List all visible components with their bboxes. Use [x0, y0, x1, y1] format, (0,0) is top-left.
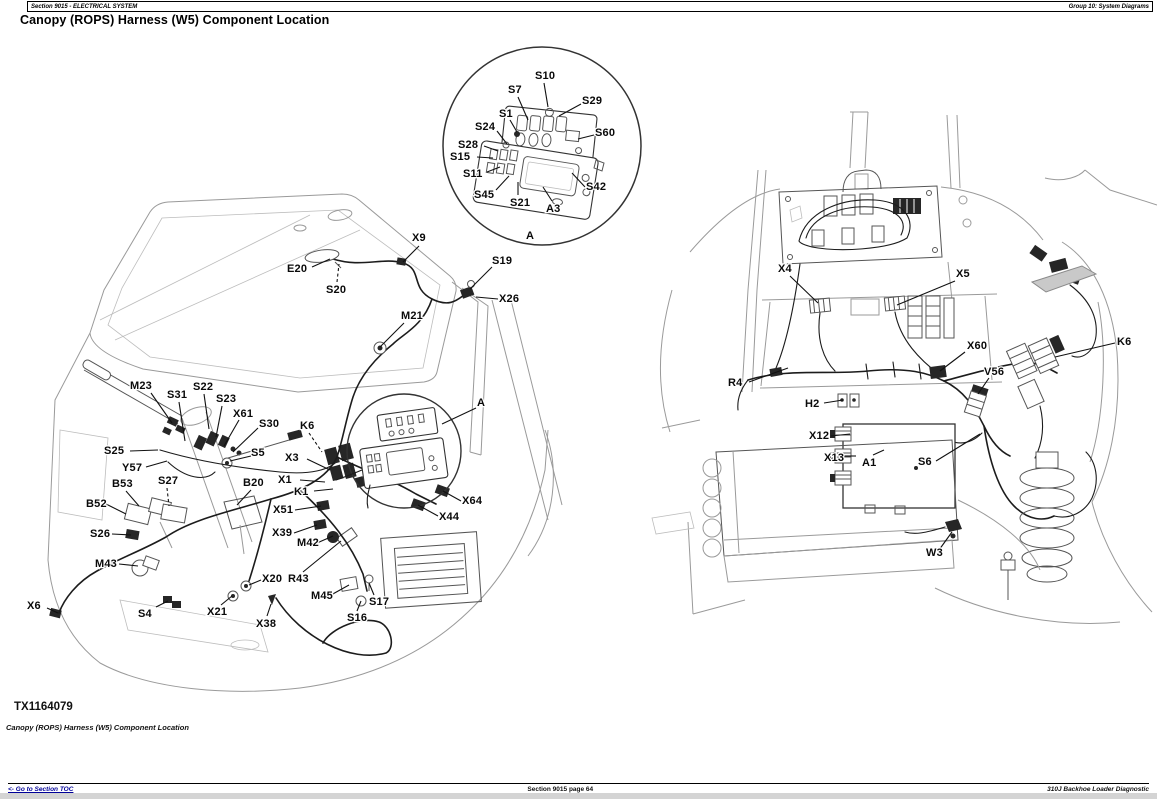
component-label-K6: K6	[1117, 336, 1131, 348]
page-title: Canopy (ROPS) Harness (W5) Component Loc…	[20, 13, 329, 27]
component-label-R4: R4	[728, 377, 743, 389]
figure-caption: Canopy (ROPS) Harness (W5) Component Loc…	[6, 723, 189, 732]
component-label-S31: S31	[167, 389, 187, 401]
component-label-H2: H2	[805, 398, 819, 410]
leader-line-S31	[179, 402, 185, 441]
component-label-M45: M45	[311, 590, 333, 602]
component-label-S23: S23	[216, 393, 236, 405]
right-location-diagram	[652, 112, 1157, 623]
leader-line-S4	[156, 601, 168, 607]
component-label-S25: S25	[104, 445, 124, 457]
leader-line-X39	[294, 525, 317, 533]
component-label-M21: M21	[401, 310, 423, 322]
component-label-S27: S27	[158, 475, 178, 487]
component-label-K1: K1	[294, 486, 308, 498]
component-label-X5: X5	[956, 268, 970, 280]
component-label-S22: S22	[193, 381, 213, 393]
component-label-R43: R43	[288, 573, 309, 585]
leader-line-K6	[309, 433, 322, 452]
header-group-text: Group 10: System Diagrams	[1069, 4, 1149, 10]
leader-line-X38	[267, 604, 271, 616]
component-label-S21: S21	[510, 197, 530, 209]
component-label-S1: S1	[499, 108, 513, 120]
component-label-S5: S5	[251, 447, 265, 459]
bottom-gray-bar	[0, 793, 1157, 799]
leader-line-X60	[940, 352, 965, 371]
component-label-X44: X44	[439, 511, 460, 523]
component-label-X60: X60	[967, 340, 987, 352]
component-label-S24: S24	[475, 121, 496, 133]
component-label-S20: S20	[326, 284, 346, 296]
component-label-X13: X13	[824, 452, 844, 464]
component-label-S60: S60	[595, 127, 615, 139]
component-label-W3: W3	[926, 547, 943, 559]
component-label-S30: S30	[259, 418, 279, 430]
component-label-S4: S4	[138, 608, 153, 620]
leader-line-X20	[249, 580, 261, 585]
leader-line-X61	[224, 420, 239, 446]
component-label-S28: S28	[458, 139, 478, 151]
leader-line-K1	[314, 489, 333, 491]
leader-line-M21	[380, 323, 404, 347]
component-label-X4: X4	[778, 263, 793, 275]
leader-line-X26	[476, 297, 498, 299]
component-label-M23: M23	[130, 380, 152, 392]
component-location-figure: S10S7S29S1S24S60S28S15S11S45S21A3S42AX9E…	[0, 0, 1157, 799]
leader-line-X51	[295, 506, 321, 510]
leader-line-S17	[369, 583, 374, 595]
component-label-X12: X12	[809, 430, 829, 442]
component-label-A1: A1	[862, 457, 876, 469]
component-label-S7: S7	[508, 84, 522, 96]
component-label-S26: S26	[90, 528, 110, 540]
component-label-X3: X3	[285, 452, 299, 464]
component-label-X6: X6	[27, 600, 41, 612]
leader-line-Y57	[146, 461, 167, 467]
component-label-S6: S6	[918, 456, 932, 468]
leader-line-A	[442, 408, 476, 424]
component-label-E20: E20	[287, 263, 307, 275]
component-label-A: A	[526, 230, 534, 242]
component-label-K6: K6	[300, 420, 314, 432]
leader-line-S20	[337, 264, 339, 282]
component-label-S19: S19	[492, 255, 512, 267]
component-label-X20: X20	[262, 573, 282, 585]
component-label-X51: X51	[273, 504, 293, 516]
component-label-S42: S42	[586, 181, 606, 193]
leader-line-X3	[307, 459, 330, 470]
leader-line-B52	[106, 504, 126, 514]
leader-line-S25	[130, 450, 158, 451]
component-label-X39: X39	[272, 527, 292, 539]
footer-product: 310J Backhoe Loader Diagnostic	[1047, 786, 1149, 793]
leader-line-X44	[418, 505, 438, 516]
component-label-X64: X64	[462, 495, 483, 507]
component-label-S17: S17	[369, 596, 389, 608]
component-label-S45: S45	[474, 189, 494, 201]
component-label-X9: X9	[412, 232, 426, 244]
footer-page-number: Section 9015 page 64	[527, 786, 593, 793]
component-label-Y57: Y57	[122, 462, 142, 474]
leader-line-S22	[204, 394, 209, 429]
component-label-X61: X61	[233, 408, 253, 420]
component-label-A3: A3	[546, 203, 560, 215]
component-label-S10: S10	[535, 70, 555, 82]
component-label-X21: X21	[207, 606, 227, 618]
component-label-X1: X1	[278, 474, 292, 486]
component-label-X26: X26	[499, 293, 519, 305]
leader-line-R4	[749, 368, 788, 382]
component-label-S29: S29	[582, 95, 602, 107]
component-label-X38: X38	[256, 618, 276, 630]
header-section-text: Section 9015 - ELECTRICAL SYSTEM	[31, 4, 137, 10]
page-footer: <- Go to Section TOC Section 9015 page 6…	[8, 783, 1149, 793]
component-label-M43: M43	[95, 558, 117, 570]
leader-line-S19	[470, 267, 492, 289]
component-label-M42: M42	[297, 537, 319, 549]
component-label-S11: S11	[463, 168, 483, 180]
manual-page: S10S7S29S1S24S60S28S15S11S45S21A3S42AX9E…	[0, 0, 1157, 799]
leader-line-S23	[216, 406, 222, 437]
component-label-A: A	[477, 397, 485, 409]
page-header: Section 9015 - ELECTRICAL SYSTEM Group 1…	[27, 1, 1153, 12]
component-label-V56: V56	[984, 366, 1004, 378]
component-label-B20: B20	[243, 477, 264, 489]
toc-link[interactable]: <- Go to Section TOC	[8, 786, 73, 793]
component-label-S16: S16	[347, 612, 367, 624]
component-label-S15: S15	[450, 151, 470, 163]
component-label-B53: B53	[112, 478, 133, 490]
figure-id: TX1164079	[14, 701, 73, 713]
leader-line-X9	[403, 246, 419, 262]
component-label-B52: B52	[86, 498, 107, 510]
